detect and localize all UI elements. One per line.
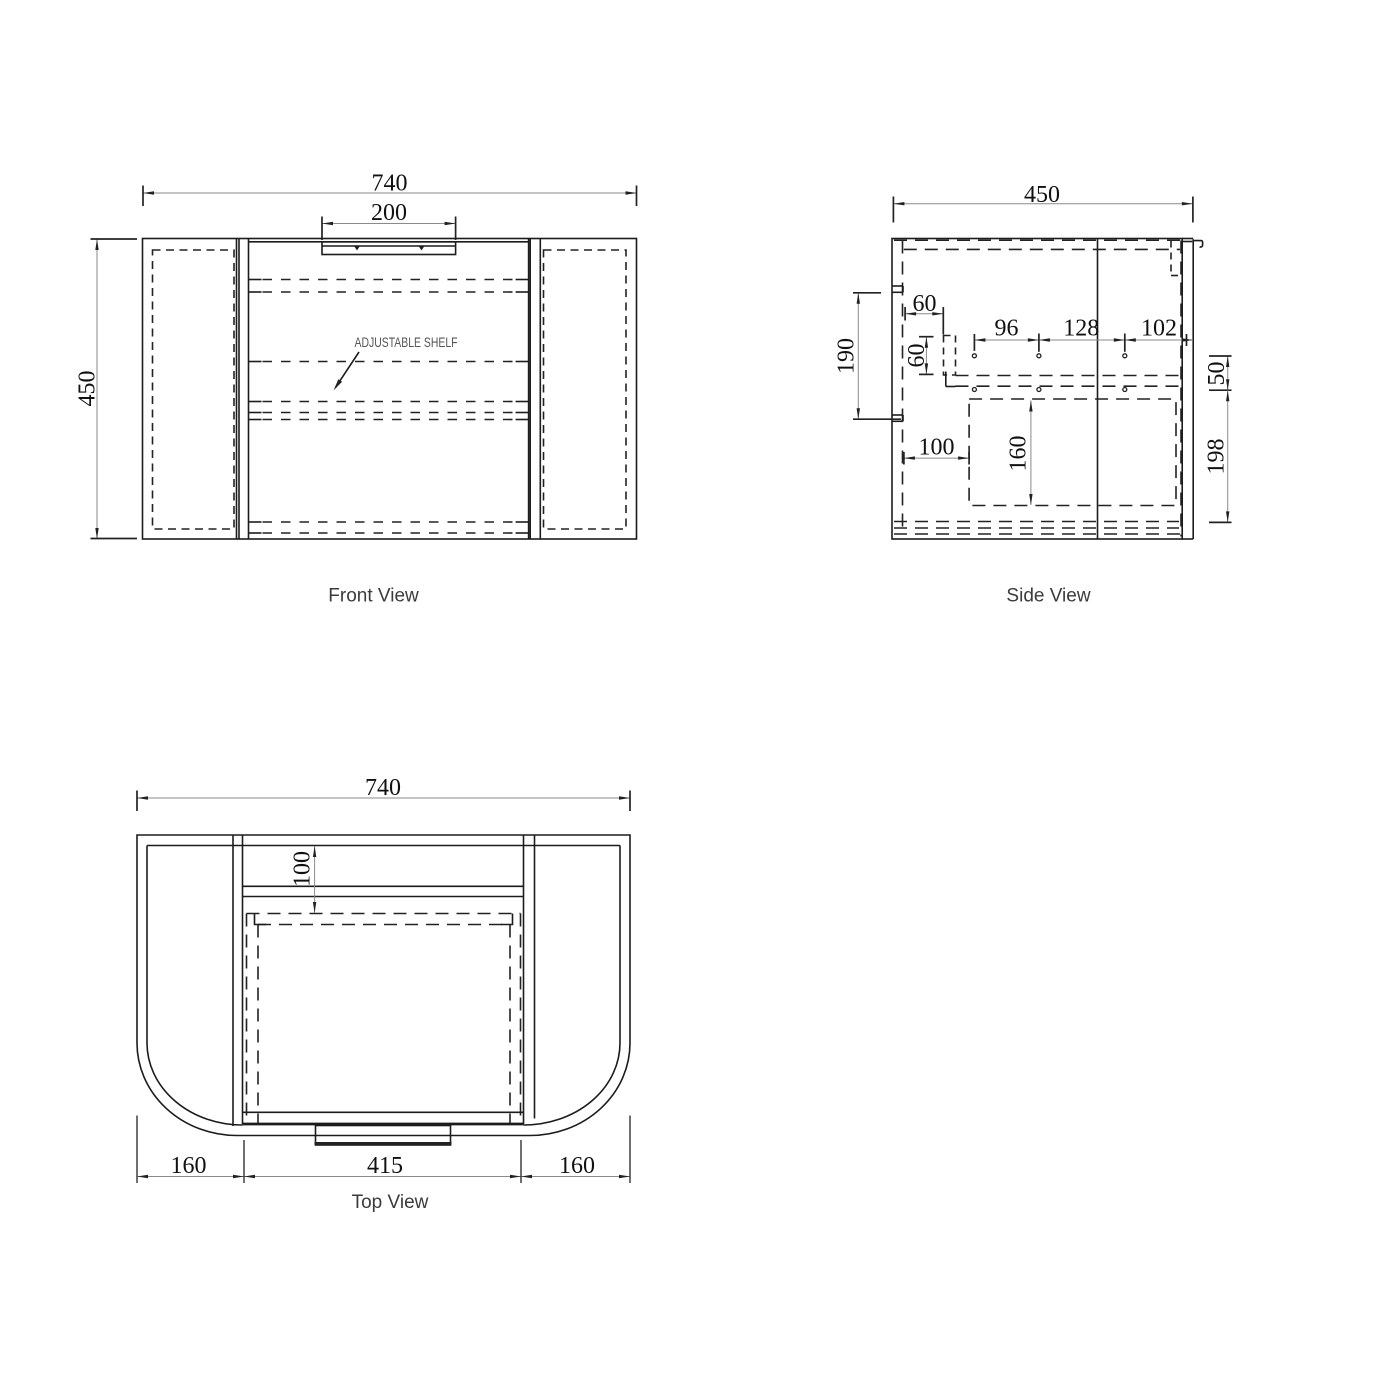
svg-text:200: 200 bbox=[371, 200, 407, 226]
svg-text:128: 128 bbox=[1063, 316, 1099, 342]
svg-text:740: 740 bbox=[365, 775, 401, 801]
svg-text:160: 160 bbox=[1006, 436, 1032, 472]
svg-text:100: 100 bbox=[919, 435, 955, 461]
svg-text:60: 60 bbox=[913, 291, 937, 317]
svg-text:190: 190 bbox=[834, 338, 860, 374]
svg-text:Top View: Top View bbox=[352, 1192, 429, 1213]
svg-text:Front View: Front View bbox=[328, 586, 419, 607]
svg-text:ADJUSTABLE SHELF: ADJUSTABLE SHELF bbox=[355, 334, 458, 350]
svg-text:50: 50 bbox=[1204, 362, 1230, 386]
svg-text:102: 102 bbox=[1141, 316, 1177, 342]
svg-text:415: 415 bbox=[367, 1153, 403, 1179]
svg-text:96: 96 bbox=[995, 316, 1019, 342]
svg-text:160: 160 bbox=[171, 1153, 207, 1179]
svg-text:Side View: Side View bbox=[1006, 586, 1090, 607]
svg-text:450: 450 bbox=[1024, 182, 1060, 208]
svg-text:198: 198 bbox=[1204, 439, 1230, 475]
svg-text:740: 740 bbox=[372, 171, 408, 197]
svg-text:160: 160 bbox=[559, 1153, 595, 1179]
svg-text:60: 60 bbox=[904, 344, 930, 368]
svg-text:100: 100 bbox=[290, 851, 316, 887]
svg-text:450: 450 bbox=[75, 371, 101, 407]
